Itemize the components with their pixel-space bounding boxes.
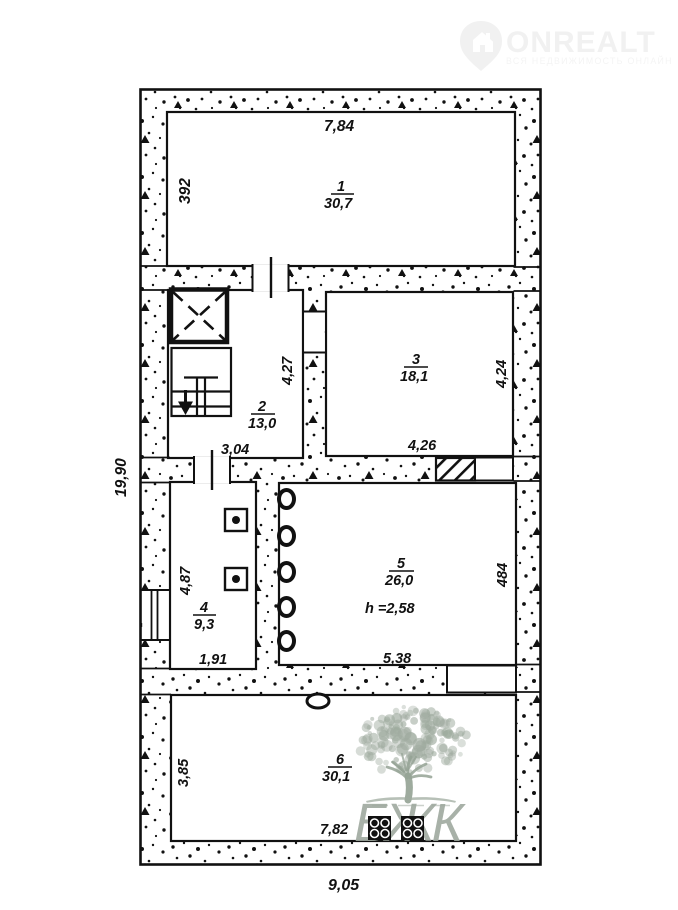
svg-text:9,3: 9,3 xyxy=(194,617,214,633)
svg-text:18,1: 18,1 xyxy=(400,369,428,385)
svg-text:4,26: 4,26 xyxy=(407,438,437,454)
svg-text:5: 5 xyxy=(397,556,406,572)
svg-text:1: 1 xyxy=(337,179,345,195)
svg-text:13,0: 13,0 xyxy=(248,416,276,432)
svg-text:1,91: 1,91 xyxy=(199,652,227,668)
svg-text:ВСЯ НЕДВИЖИМОСТЬ ОНЛАЙН: ВСЯ НЕДВИЖИМОСТЬ ОНЛАЙН xyxy=(506,55,673,66)
svg-text:ONREALT: ONREALT xyxy=(506,26,656,59)
svg-text:4,27: 4,27 xyxy=(280,356,296,386)
svg-text:h =2,58: h =2,58 xyxy=(365,601,416,617)
svg-text:4: 4 xyxy=(199,600,208,616)
svg-text:3: 3 xyxy=(412,352,420,368)
svg-text:26,0: 26,0 xyxy=(384,573,413,589)
svg-text:4,24: 4,24 xyxy=(494,360,510,389)
svg-text:3,85: 3,85 xyxy=(176,758,192,787)
svg-text:7,82: 7,82 xyxy=(320,822,348,838)
svg-text:30,7: 30,7 xyxy=(324,196,353,212)
svg-text:30,1: 30,1 xyxy=(322,769,350,785)
svg-text:484: 484 xyxy=(495,563,511,588)
svg-text:392: 392 xyxy=(177,178,194,204)
svg-text:2: 2 xyxy=(257,399,266,415)
svg-text:19,90: 19,90 xyxy=(113,458,130,497)
svg-text:3,04: 3,04 xyxy=(221,442,249,458)
svg-text:7,84: 7,84 xyxy=(324,118,355,135)
svg-text:6: 6 xyxy=(336,752,345,768)
svg-text:5,38: 5,38 xyxy=(383,651,412,667)
svg-text:9,05: 9,05 xyxy=(328,877,360,894)
svg-text:4,87: 4,87 xyxy=(178,566,194,596)
